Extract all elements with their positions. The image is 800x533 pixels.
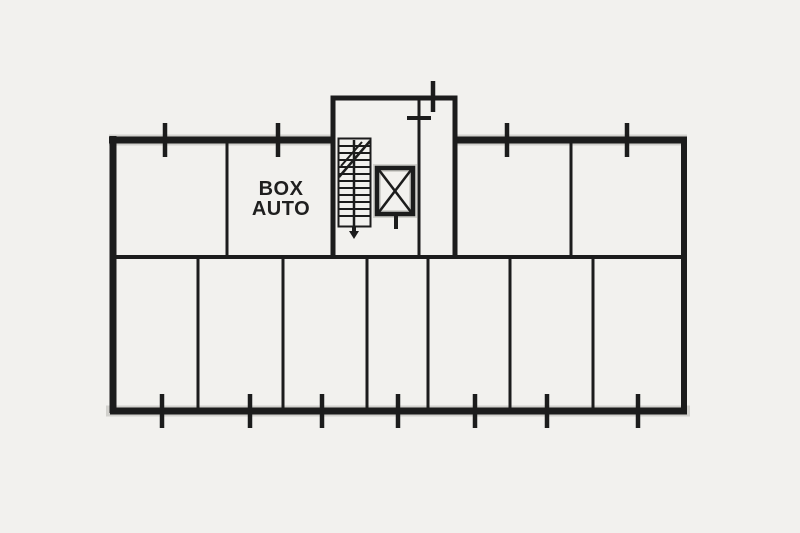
box-auto-label: BOX AUTO — [252, 178, 310, 220]
box-auto-label-line1: BOX — [259, 178, 304, 200]
floor-plan-scan: BOX AUTO — [0, 0, 800, 533]
stairwell-block-walls — [331, 96, 458, 258]
wall-opening-ticks — [162, 81, 638, 428]
box-auto-label-line2: AUTO — [252, 198, 310, 220]
stairs-symbol — [339, 139, 371, 240]
elevator-shaft-symbol — [377, 168, 413, 229]
outer-walls — [109, 136, 687, 413]
interior-walls — [110, 143, 687, 408]
stair-arrow-head — [349, 231, 359, 239]
scan-smudge-layer — [106, 140, 690, 411]
floor-plan-drawing: BOX AUTO — [0, 0, 800, 533]
